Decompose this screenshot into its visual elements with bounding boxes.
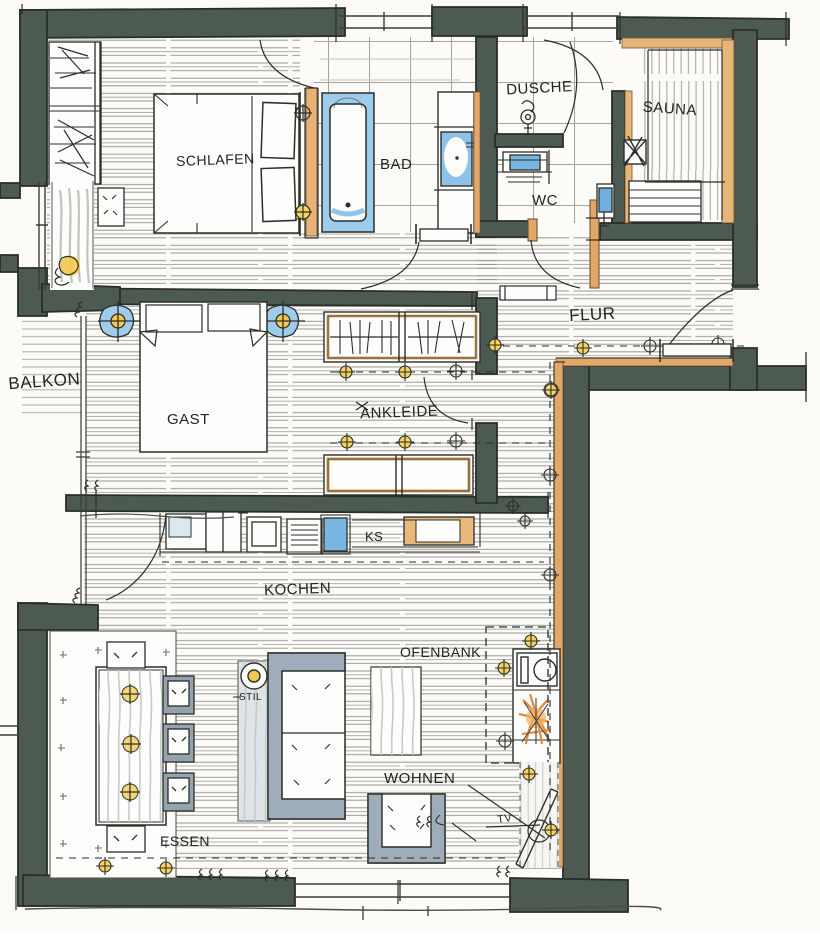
svg-text:OFENBANK: OFENBANK (400, 644, 481, 660)
svg-text:GAST: GAST (167, 411, 210, 428)
svg-text:KOCHEN: KOCHEN (264, 580, 332, 599)
svg-text:TV: TV (497, 812, 514, 826)
svg-text:WC: WC (532, 192, 558, 209)
svg-text:KS: KS (365, 529, 383, 544)
svg-text:ESSEN: ESSEN (160, 833, 210, 849)
svg-text:STIL: STIL (239, 692, 262, 703)
svg-text:ANKLEIDE: ANKLEIDE (360, 403, 439, 423)
svg-text:WOHNEN: WOHNEN (384, 770, 455, 787)
svg-text:BAD: BAD (380, 156, 412, 173)
svg-text:FLUR: FLUR (569, 304, 616, 325)
svg-text:SCHLAFEN: SCHLAFEN (176, 150, 255, 169)
svg-text:DUSCHE: DUSCHE (506, 78, 573, 98)
